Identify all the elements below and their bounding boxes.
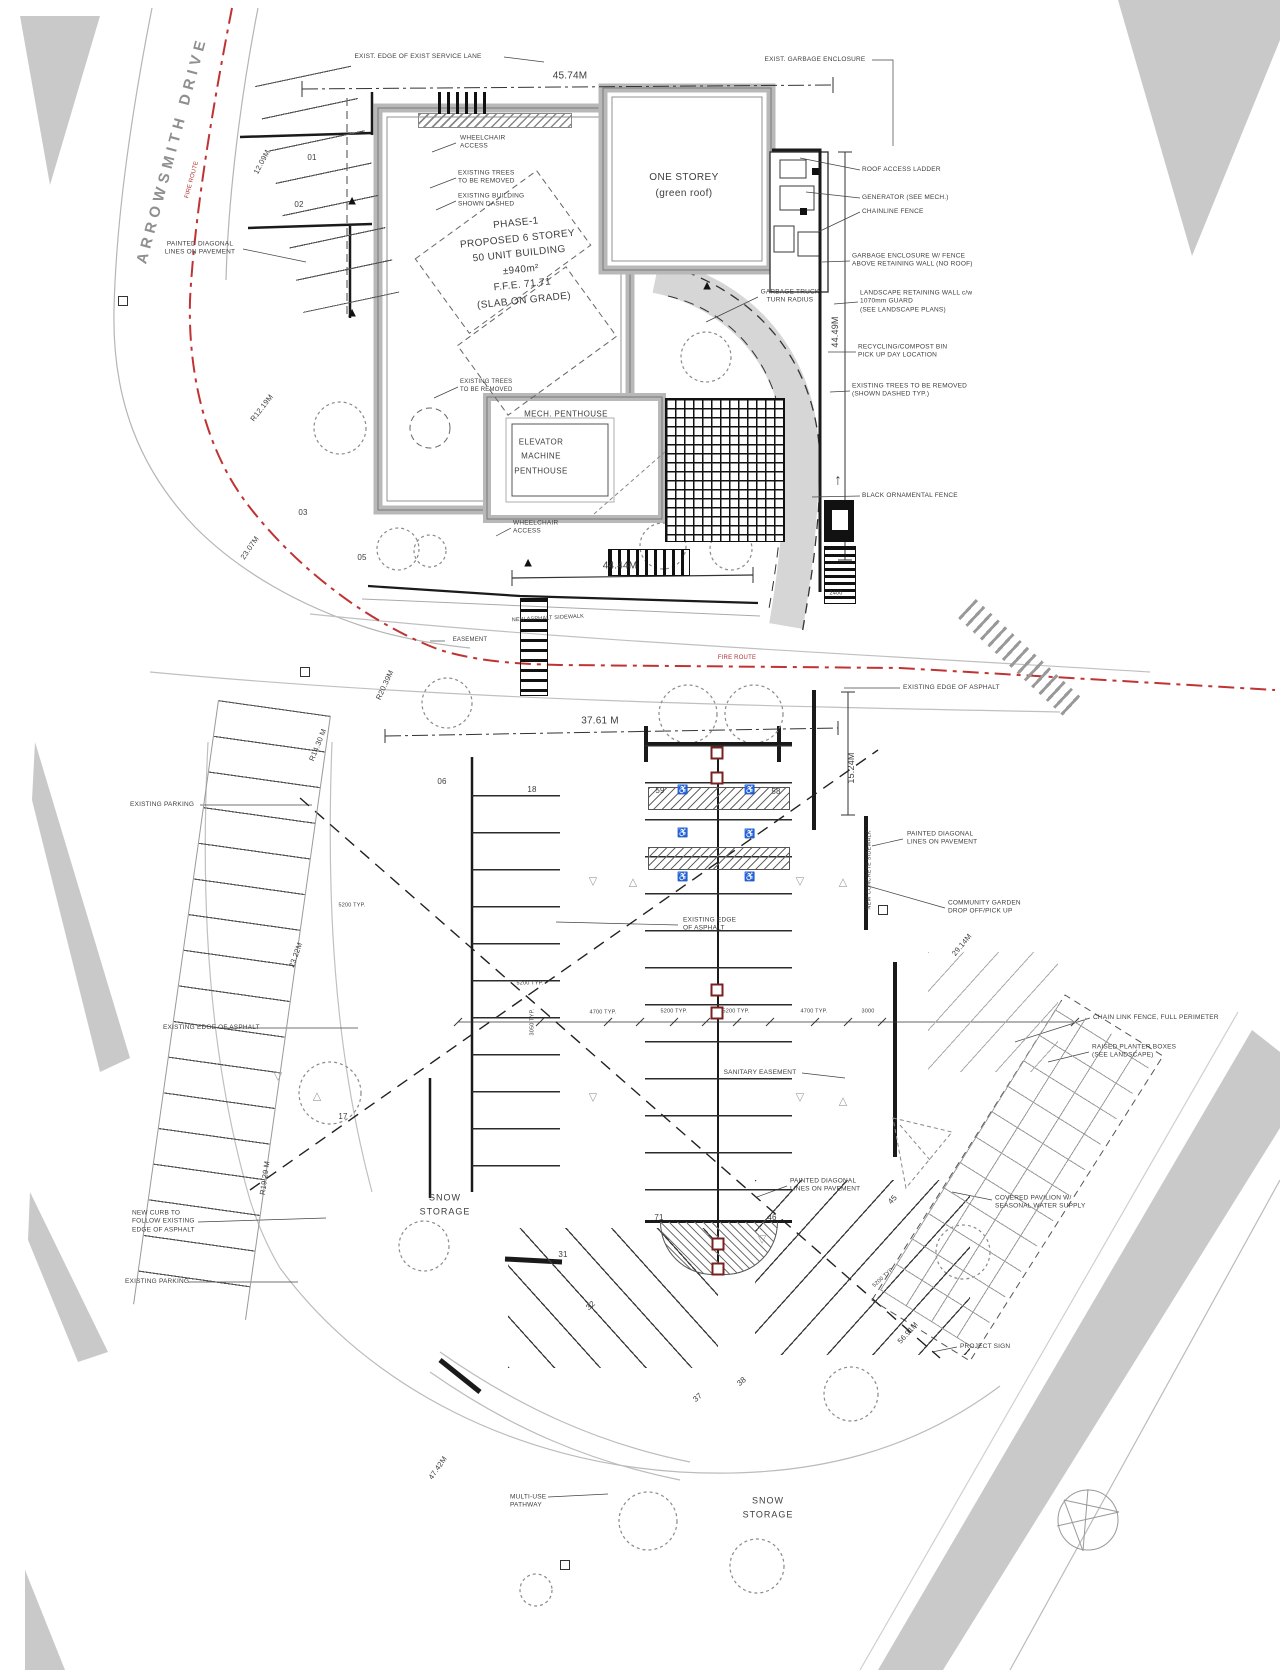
space-06: 06 xyxy=(437,777,446,787)
space-31: 31 xyxy=(558,1250,567,1260)
chainlink-fence-label: CHAINLINE FENCE xyxy=(862,208,924,216)
dim-44-49: 44.49M xyxy=(830,316,842,347)
stair-up-arrow: ↑ xyxy=(834,470,842,490)
generator-label: GENERATOR (SEE MECH.) xyxy=(862,194,949,202)
painted-diagonal-label-3: PAINTED DIAGONAL LINES ON PAVEMENT xyxy=(790,1178,860,1195)
space-01: 01 xyxy=(307,153,316,163)
recycling-compost-label: RECYCLING/COMPOST BIN PICK UP DAY LOCATI… xyxy=(858,344,947,361)
pavement-arrow-icon: △ xyxy=(629,878,637,889)
catch-basin-marker xyxy=(878,905,888,915)
phase1-building-label: PHASE-1 PROPOSED 6 STOREY 50 UNIT BUILDI… xyxy=(458,210,583,315)
typ-5200-c: 5200 TYP. xyxy=(723,1008,750,1015)
typ-5200-left: 5200 TYP. xyxy=(339,902,366,909)
garbage-truck-radius-label: GARBAGE TRUCK TURN RADIUS xyxy=(761,289,820,306)
covered-pavilion-label: COVERED PAVILION W/ SEASONAL WATER SUPPL… xyxy=(995,1195,1086,1212)
easement-label: EASEMENT xyxy=(453,637,488,645)
roof-access-ladder-label: ROOF ACCESS LADDER xyxy=(862,166,941,174)
existing-parking-label-1: EXISTING PARKING xyxy=(130,801,194,809)
pavement-arrow-icon: ▽ xyxy=(274,1072,282,1083)
accessible-parking-icon: ♿ xyxy=(677,873,688,882)
crosswalk-top xyxy=(438,92,492,114)
multiuse-pathway-label: MULTI-USE PATHWAY xyxy=(510,1494,546,1511)
accessible-parking-icon: ♿ xyxy=(744,786,755,795)
landscape-retaining-wall-label: LANDSCAPE RETAINING WALL c/w 1070mm GUAR… xyxy=(860,289,972,314)
crosswalk-mid xyxy=(520,598,548,696)
sanitary-easement-label: SANITARY EASEMENT xyxy=(724,1069,797,1077)
one-storey-building-label: ONE STOREY (green roof) xyxy=(649,170,718,202)
black-ornamental-fence-label: BLACK ORNAMENTAL FENCE xyxy=(862,492,958,500)
exist-garbage-enclosure-label: EXIST. GARBAGE ENCLOSURE xyxy=(765,56,866,64)
project-sign-label: PROJECT SIGN xyxy=(960,1343,1010,1351)
mech-penthouse-label: MECH. PENTHOUSE xyxy=(524,410,608,419)
garbage-enclosure-fence-label: GARBAGE ENCLOSURE W/ FENCE ABOVE RETAINI… xyxy=(852,253,973,270)
catch-basin-marker xyxy=(300,667,310,677)
existing-edge-asphalt-label-r: EXISTING EDGE OF ASPHALT xyxy=(903,684,1000,692)
entry-arrow-icon: ▲ xyxy=(701,279,714,292)
space-18: 18 xyxy=(527,785,536,795)
space-58: 58 xyxy=(771,787,780,797)
building-top-hatched-wall xyxy=(418,113,572,128)
parking-central-right xyxy=(718,742,792,1225)
space-59: 59 xyxy=(655,786,664,796)
bollard-marker xyxy=(711,984,724,997)
typ-5200-mid: 5200 TYP. xyxy=(517,980,544,987)
site-plan: ARROWSMITH DRIVE PHASE-1 PROPOSED 6 STOR… xyxy=(0,0,1280,1670)
bollard-marker xyxy=(712,1238,725,1251)
bollard-marker xyxy=(711,1007,724,1020)
accessible-parking-icon: ♿ xyxy=(744,830,755,839)
exist-service-lane-label: EXIST. EDGE OF EXIST SERVICE LANE xyxy=(354,53,481,61)
painted-diagonal-label-1: PAINTED DIAGONAL LINES ON PAVEMENT xyxy=(165,241,235,258)
space-71: 71 xyxy=(654,1213,663,1223)
accessible-parking-icon: ♿ xyxy=(677,786,688,795)
existing-building-dashed-label: EXISTING BUILDING SHOWN DASHED xyxy=(458,193,524,210)
typ-4700-a: 4700 TYP. xyxy=(590,1009,617,1016)
existing-trees-label-3: EXISTING TREES TO BE REMOVED xyxy=(460,379,513,395)
dim-44-44: 44.44M xyxy=(603,560,638,573)
entry-arrow-icon: ▲ xyxy=(346,194,359,207)
dim-15-24: 15.24M xyxy=(846,752,858,783)
north-compass xyxy=(1057,1489,1119,1551)
new-curb-label: NEW CURB TO FOLLOW EXISTING EDGE OF ASPH… xyxy=(132,1209,195,1234)
space-03: 03 xyxy=(298,508,307,518)
pavement-arrow-icon: ▽ xyxy=(589,877,597,888)
accessible-parking-icon: ♿ xyxy=(677,829,688,838)
community-garden-label: COMMUNITY GARDEN DROP OFF/PICK UP xyxy=(948,900,1021,917)
pavement-arrow-icon: △ xyxy=(839,1097,847,1108)
painted-diagonal-label-2: PAINTED DIAGONAL LINES ON PAVEMENT xyxy=(907,831,977,848)
accessible-parking-icon: ♿ xyxy=(744,873,755,882)
catch-basin-marker xyxy=(118,296,128,306)
chain-link-perimeter-label: CHAIN LINK FENCE, FULL PERIMETER xyxy=(1093,1014,1219,1022)
wheelchair-access-label-1: WHEELCHAIR ACCESS xyxy=(460,135,505,152)
paver-grid xyxy=(665,398,785,542)
parking-central-left xyxy=(645,742,718,1225)
bollard-marker xyxy=(712,1263,725,1276)
pavement-arrow-icon: △ xyxy=(839,878,847,889)
snow-storage-label-bottom: SNOW STORAGE xyxy=(743,1494,794,1523)
dim-45-74: 45.74M xyxy=(553,70,588,83)
existing-trees-label-1: EXISTING TREES TO BE REMOVED xyxy=(458,170,515,187)
accessible-hatch-strip-2 xyxy=(648,847,790,870)
existing-parking-label-2: EXISTING PARKING xyxy=(125,1278,189,1286)
entry-arrow-icon: ▲ xyxy=(346,306,359,319)
pavement-arrow-icon: ▽ xyxy=(796,877,804,888)
dim-2400: 2400 xyxy=(829,590,842,597)
entry-arrow-icon: ▲ xyxy=(522,556,535,569)
existing-trees-removed-label-2: EXISTING TREES TO BE REMOVED (SHOWN DASH… xyxy=(852,383,967,400)
wheelchair-access-label-2: WHEELCHAIR ACCESS xyxy=(513,520,558,537)
elevator-penthouse-label: ELEVATOR MACHINE PENTHOUSE xyxy=(514,435,567,478)
raised-planter-label: RAISED PLANTER BOXES (SEE LANDSCAPE) xyxy=(1092,1044,1176,1061)
pavilion xyxy=(893,1118,952,1188)
space-05: 05 xyxy=(357,553,366,563)
accessible-hatch-strip-1 xyxy=(648,787,790,810)
existing-edge-asphalt-label-c: EXISTING EDGE OF ASPHALT xyxy=(683,917,736,934)
typ-4700-d: 4700 TYP. xyxy=(801,1008,828,1015)
space-17: 17 xyxy=(338,1112,347,1122)
bollard-marker xyxy=(711,747,724,760)
fire-route-text-2: FIRE ROUTE xyxy=(718,655,756,663)
space-02: 02 xyxy=(294,200,303,210)
snow-storage-label-left: SNOW STORAGE xyxy=(420,1191,471,1220)
dim-37-61: 37.61 M xyxy=(581,715,619,728)
dim-3000: 3000 xyxy=(861,1008,874,1015)
existing-edge-asphalt-label-l: EXISTING EDGE OF ASPHALT xyxy=(163,1024,260,1032)
new-concrete-sidewalk-label: NEW CONCRETE SIDEWALK xyxy=(866,830,873,909)
pavement-arrow-icon: ▽ xyxy=(796,1093,804,1104)
space-46: 46 xyxy=(767,1213,776,1223)
garden-parking-small xyxy=(928,952,1058,1072)
pavement-arrow-icon: △ xyxy=(313,1092,321,1103)
bollard-marker xyxy=(711,772,724,785)
typ-3050: 3050 TYP. xyxy=(529,1009,536,1036)
typ-5200-b: 5200 TYP. xyxy=(661,1008,688,1015)
pavement-arrow-icon: ▽ xyxy=(589,1093,597,1104)
catch-basin-marker xyxy=(560,1560,570,1570)
stair-landing-inner xyxy=(830,508,850,532)
parking-column-18 xyxy=(472,795,560,1195)
pavement-arrow-icon: ▽ xyxy=(758,1235,766,1246)
